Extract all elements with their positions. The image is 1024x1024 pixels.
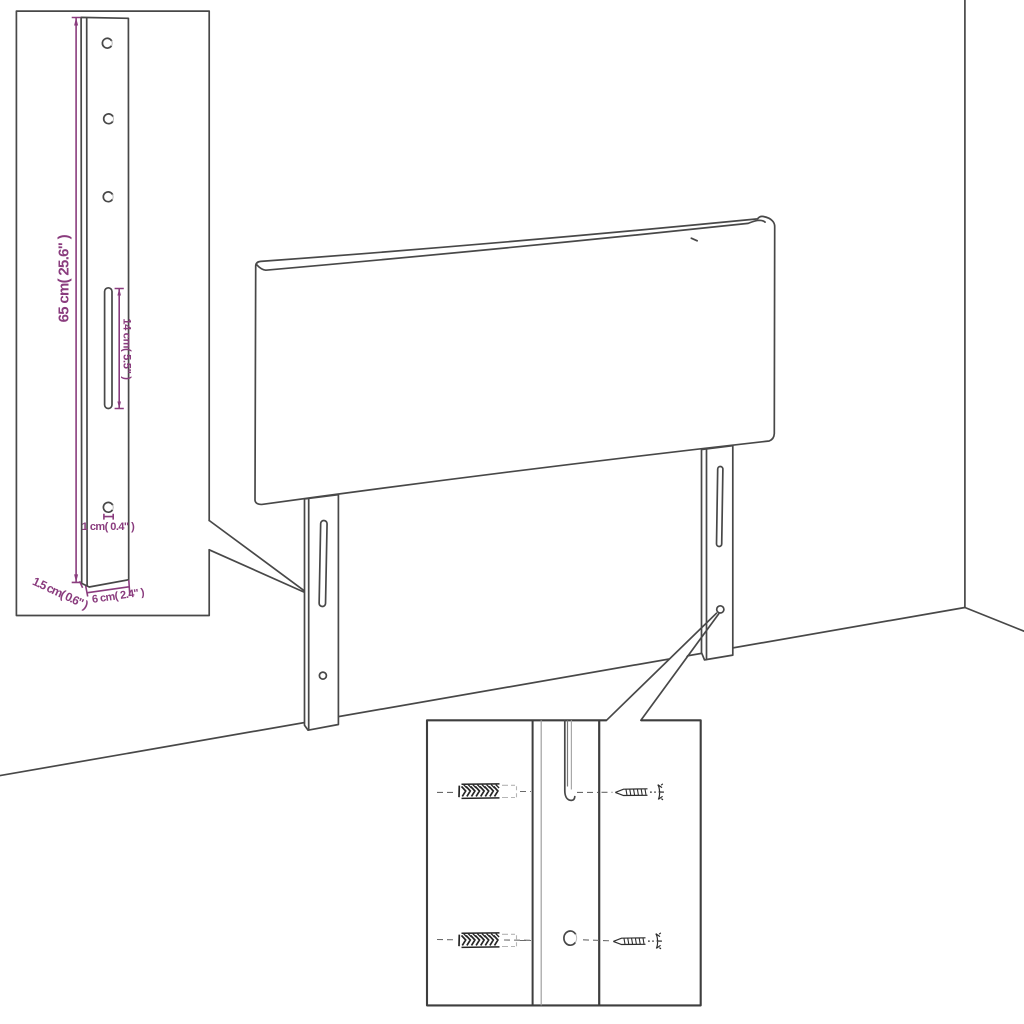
- svg-text:6 cm( 2.4" ): 6 cm( 2.4" ): [91, 587, 145, 606]
- svg-text:1 cm( 0.4" ): 1 cm( 0.4" ): [82, 521, 135, 533]
- svg-text:65 cm( 25.6" ): 65 cm( 25.6" ): [55, 234, 72, 322]
- svg-text:14 cm( 5.5" ): 14 cm( 5.5" ): [120, 318, 132, 380]
